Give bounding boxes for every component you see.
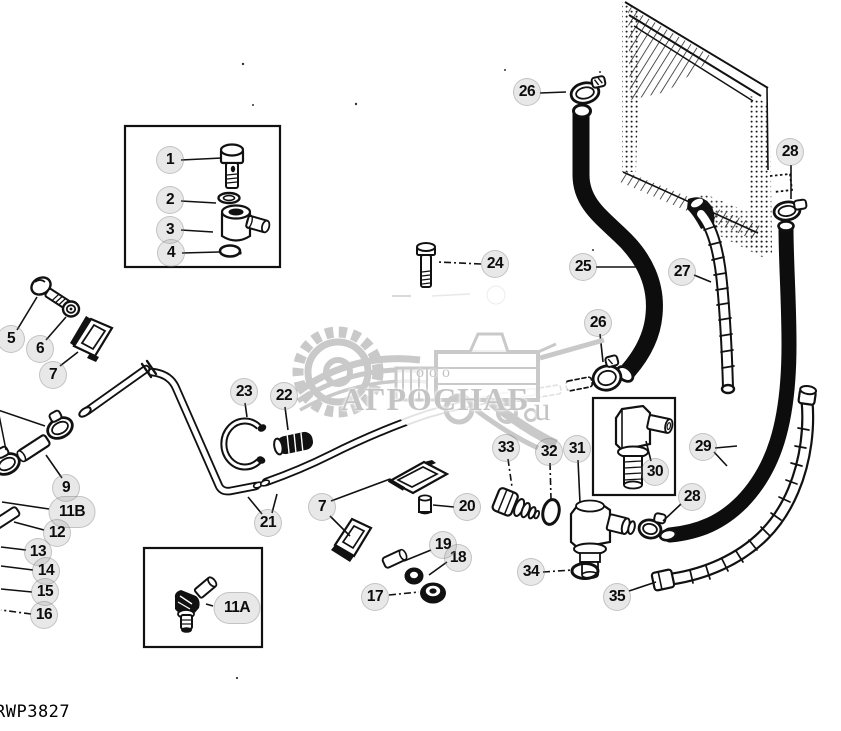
callout-28b: 28 xyxy=(678,483,706,511)
callout-32: 32 xyxy=(535,438,563,466)
callout-5: 5 xyxy=(0,325,25,353)
callout-30: 30 xyxy=(641,458,669,486)
drawing-number: RWP3827 xyxy=(0,702,70,722)
callout-31: 31 xyxy=(563,435,591,463)
callout-16: 16 xyxy=(30,601,58,629)
callout-22: 22 xyxy=(270,382,298,410)
callout-7b: 7 xyxy=(308,493,336,521)
callout-19: 19 xyxy=(429,531,457,559)
callout-27: 27 xyxy=(668,258,696,286)
callout-29: 29 xyxy=(689,433,717,461)
callout-34: 34 xyxy=(517,558,545,586)
callout-4: 4 xyxy=(157,239,185,267)
callout-17: 17 xyxy=(361,583,389,611)
callout-33: 33 xyxy=(492,434,520,462)
callout-6: 6 xyxy=(26,335,54,363)
callout-2: 2 xyxy=(156,186,184,214)
callout-26a: 26 xyxy=(513,78,541,106)
callout-11A: 11A xyxy=(214,592,261,624)
callout-20: 20 xyxy=(453,493,481,521)
callout-26b: 26 xyxy=(584,309,612,337)
parts-diagram-page: ооо АГРОСНАБ u 1234567911B12131415161718… xyxy=(0,0,841,731)
callout-21: 21 xyxy=(254,509,282,537)
callout-24: 24 xyxy=(481,250,509,278)
callout-35: 35 xyxy=(603,583,631,611)
callout-labels-layer: 1234567911B12131415161718192021222324252… xyxy=(0,0,841,731)
callout-23: 23 xyxy=(230,378,258,406)
callout-25: 25 xyxy=(569,253,597,281)
callout-1: 1 xyxy=(156,146,184,174)
callout-28a: 28 xyxy=(776,138,804,166)
callout-7a: 7 xyxy=(39,361,67,389)
